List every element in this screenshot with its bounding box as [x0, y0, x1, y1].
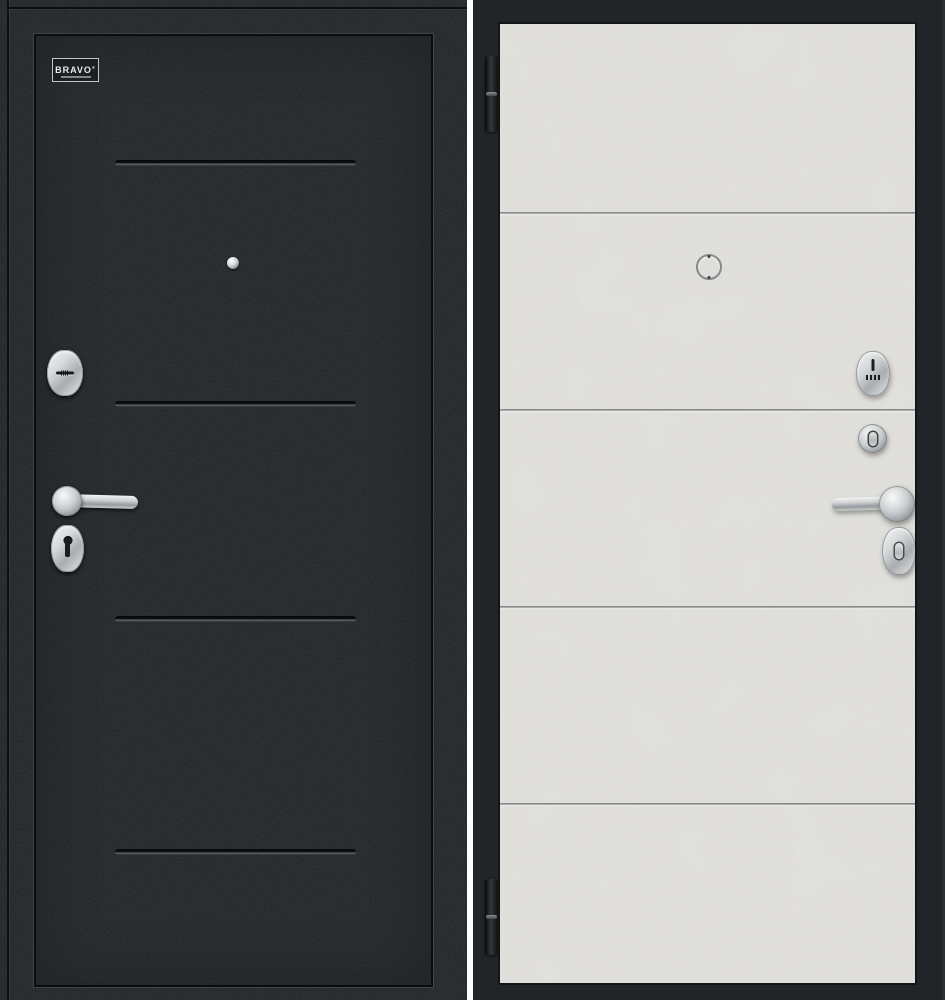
keyhole-icon — [63, 536, 72, 545]
decor-groove — [500, 606, 915, 610]
decor-groove — [115, 616, 356, 622]
registered-mark: ® — [92, 65, 96, 70]
keyhole-escutcheon — [51, 525, 84, 572]
hinge-top — [485, 56, 498, 132]
thumbturn-slot — [872, 359, 875, 371]
frame-left-edge — [7, 0, 9, 1000]
interior-door-leaf — [500, 24, 915, 983]
exterior-door-leaf — [36, 36, 431, 985]
peephole-screw — [708, 255, 711, 258]
thumbturn-escutcheon — [856, 351, 890, 396]
handle-rosette — [52, 486, 82, 516]
latch-thumb — [867, 430, 878, 447]
thumbturn-hatch — [866, 375, 880, 380]
cylinder-escutcheon — [47, 350, 83, 396]
brand-logo-text: BRAVO® — [55, 63, 96, 75]
decor-groove — [500, 803, 915, 807]
peephole-screw — [708, 276, 711, 279]
decor-groove — [500, 409, 915, 413]
night-latch-knob — [858, 424, 887, 453]
decor-groove — [500, 212, 915, 216]
thumbturn-oval-escutcheon — [882, 527, 915, 575]
logo-tagline — [61, 76, 91, 78]
key-slot — [56, 372, 74, 375]
decor-groove — [115, 160, 356, 166]
thumbturn-knob — [894, 542, 905, 561]
exterior-door-panel: BRAVO® — [0, 0, 467, 1000]
decor-groove — [115, 849, 356, 855]
peephole-ring — [696, 254, 722, 280]
hinge-bottom — [485, 879, 498, 955]
handle-rosette — [879, 486, 915, 522]
decor-groove — [115, 401, 356, 407]
interior-door-panel — [473, 0, 945, 1000]
brand-logo-badge: BRAVO® — [52, 58, 99, 82]
peephole — [227, 257, 239, 269]
frame-top-edge — [7, 7, 467, 9]
product-photo-steel-door: BRAVO® — [0, 0, 945, 1000]
